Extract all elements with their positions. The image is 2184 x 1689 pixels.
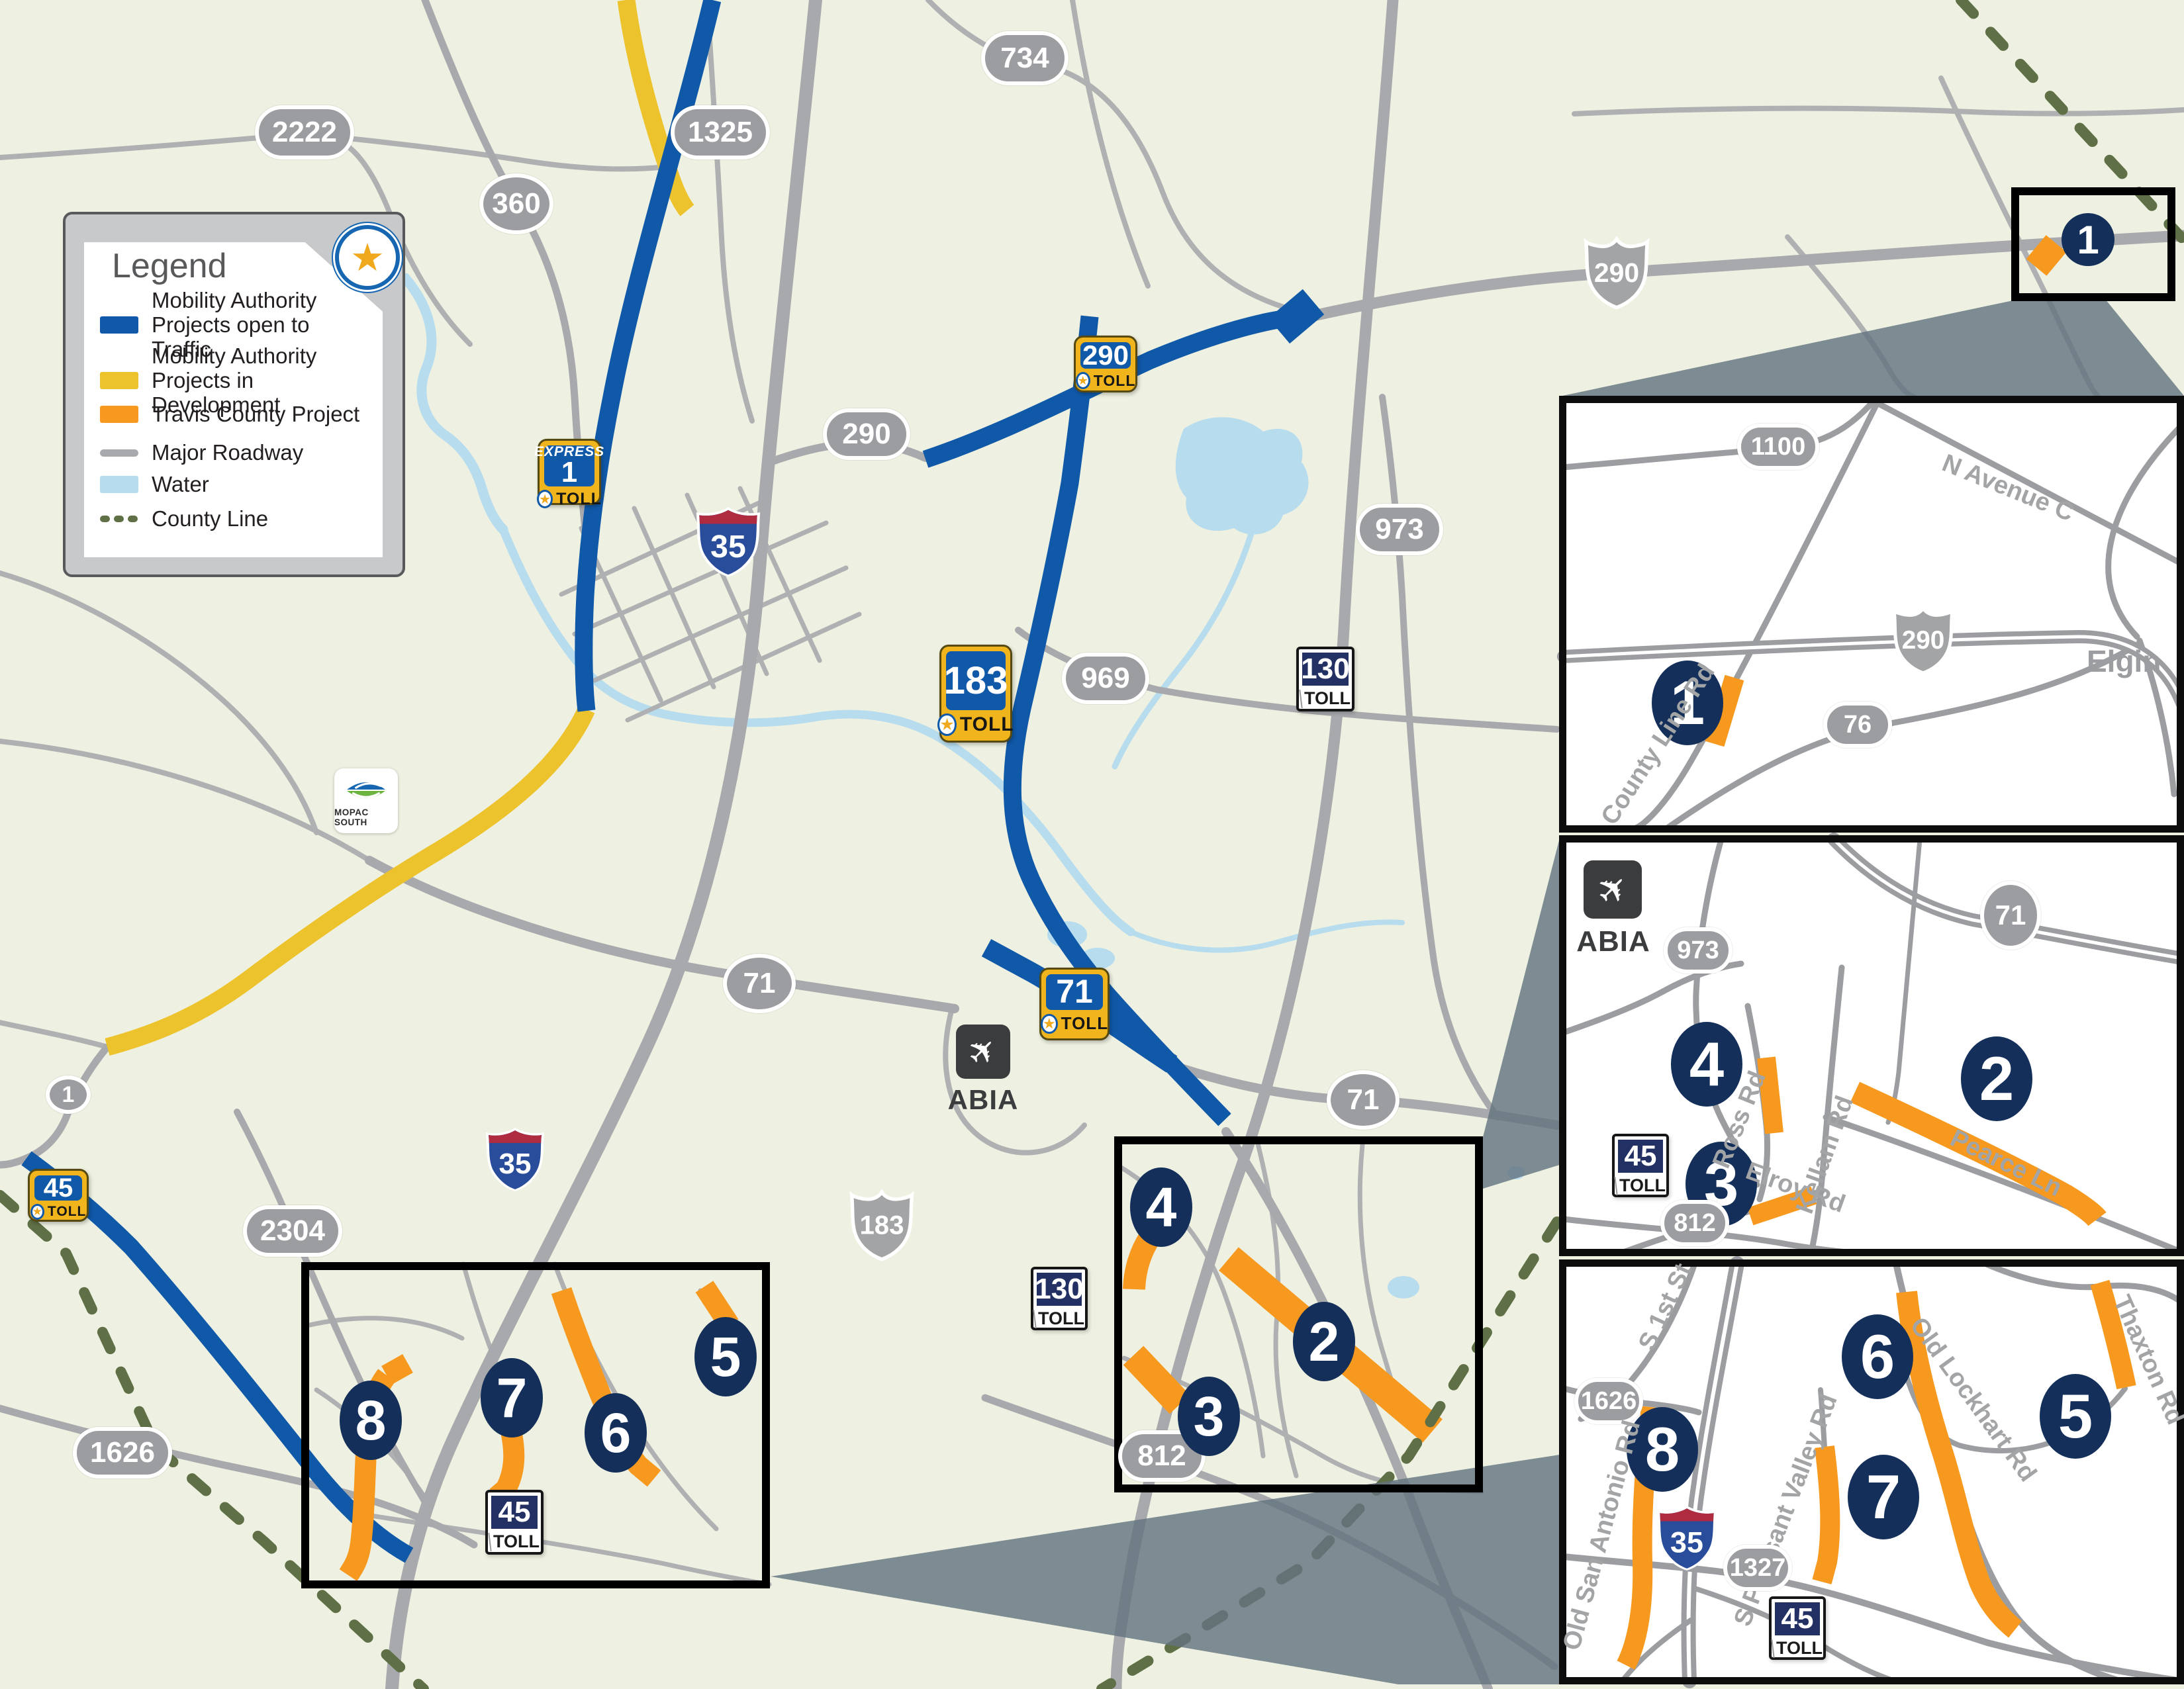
legend-swatch-water bbox=[100, 476, 138, 493]
mobility-authority-star-icon: ★ bbox=[937, 713, 956, 736]
legend-title: Legend bbox=[112, 246, 227, 286]
route-shield-1626: 1626 bbox=[73, 1427, 172, 1479]
elgin-city-label: Elgin bbox=[2087, 643, 2161, 679]
project-marker-6-number: 6 bbox=[600, 1401, 632, 1465]
project-marker-8: 8 bbox=[340, 1381, 402, 1460]
route-shield-71-east-label: 71 bbox=[1347, 1083, 1380, 1117]
toll-290-number: 290 bbox=[1082, 342, 1129, 369]
project-marker-1-number: 1 bbox=[2077, 217, 2099, 263]
inset2-abia-airport-icon: ✈ bbox=[1584, 860, 1642, 919]
texas-flag-icon: ★ bbox=[1771, 1639, 1774, 1657]
inset3-i35-label: 35 bbox=[1670, 1525, 1703, 1559]
interstate-shield-35-south: 35 bbox=[481, 1126, 549, 1198]
mopac-south-logo: MoPac South bbox=[334, 768, 398, 833]
inset3-marker-7-number: 7 bbox=[1866, 1461, 1901, 1533]
inset2-route-shield-973: 973 bbox=[1664, 927, 1733, 974]
inset1-route-shield-1100: 1100 bbox=[1737, 424, 1819, 470]
route-shield-1325-label: 1325 bbox=[688, 116, 753, 149]
toll-shield-290: 290 ★TOLL bbox=[1074, 336, 1137, 392]
inset2-txdot-45-number: 45 bbox=[1618, 1140, 1663, 1173]
route-shield-969-label: 969 bbox=[1081, 662, 1129, 695]
mobility-authority-star-icon: ★ bbox=[537, 490, 553, 508]
legend-item-major-roadway: Major Roadway bbox=[100, 441, 370, 465]
route-shield-973-label: 973 bbox=[1375, 513, 1423, 546]
inset3-marker-5-number: 5 bbox=[2058, 1381, 2093, 1452]
route-shield-71-west-label: 71 bbox=[743, 967, 776, 1000]
toll-shield-183: 183 ★TOLL bbox=[939, 645, 1012, 743]
austin-mobility-projects-map: 2222 360 1325 734 290 969 973 71 71 1 23… bbox=[0, 0, 2184, 1689]
inset3-marker-8-number: 8 bbox=[1645, 1414, 1680, 1485]
legend-label: Water bbox=[152, 473, 370, 497]
txdot-130-number: 130 bbox=[1037, 1273, 1082, 1306]
toll-word: TOLL bbox=[1094, 372, 1136, 390]
toll-word: TOLL bbox=[556, 490, 602, 509]
airplane-icon: ✈ bbox=[1586, 863, 1639, 916]
mobility-authority-star-icon: ★ bbox=[30, 1204, 44, 1220]
legend-swatch-gray-line bbox=[100, 449, 138, 457]
inset1-us-highway-shield-290: 290 bbox=[1889, 606, 1957, 676]
project-marker-4: 4 bbox=[1130, 1167, 1192, 1247]
txdot-130-number: 130 bbox=[1302, 653, 1349, 686]
toll-shield-express-1: EXPRESS1 ★TOLL bbox=[538, 439, 601, 505]
inset2-marker-4-number: 4 bbox=[1689, 1028, 1724, 1100]
inset1-1100-label: 1100 bbox=[1751, 433, 1805, 461]
express-1-number: 1 bbox=[561, 459, 577, 486]
legend-swatch-blue bbox=[100, 316, 138, 334]
i35-label: 35 bbox=[710, 529, 746, 565]
inset2-route-shield-812: 812 bbox=[1660, 1200, 1729, 1246]
project-marker-1: 1 bbox=[2062, 213, 2114, 266]
texas-flag-icon: ★ bbox=[1033, 1309, 1036, 1328]
project-marker-7: 7 bbox=[481, 1358, 543, 1438]
abia-airport-icon: ✈ bbox=[956, 1025, 1010, 1079]
txdot-toll-shield-130-north: 130 ★TOLL bbox=[1296, 647, 1354, 711]
legend-item-water: Water bbox=[100, 473, 370, 497]
route-shield-2304: 2304 bbox=[243, 1205, 342, 1257]
toll-71-number: 71 bbox=[1056, 976, 1093, 1008]
toll-word: TOLL bbox=[48, 1204, 86, 1220]
route-shield-71-west: 71 bbox=[723, 954, 796, 1013]
toll-183-number: 183 bbox=[944, 662, 1008, 699]
inset2-973-label: 973 bbox=[1677, 936, 1719, 965]
route-shield-2222-label: 2222 bbox=[272, 116, 337, 149]
legend-label: County Line bbox=[152, 507, 370, 531]
texas-flag-icon: ★ bbox=[1614, 1176, 1617, 1195]
abia-airport-label: ABIA bbox=[943, 1084, 1023, 1116]
route-shield-71-east: 71 bbox=[1327, 1070, 1400, 1130]
legend-item-travis-county: Travis County Project bbox=[100, 402, 370, 427]
route-shield-2222: 2222 bbox=[255, 105, 354, 160]
us-highway-shield-290: 290 bbox=[1581, 236, 1652, 310]
route-shield-973: 973 bbox=[1356, 504, 1443, 555]
route-shield-1626-label: 1626 bbox=[90, 1436, 155, 1469]
inset2-project-marker-4: 4 bbox=[1671, 1022, 1742, 1107]
inset3-1327-label: 1327 bbox=[1730, 1554, 1786, 1582]
inset3-project-marker-6: 6 bbox=[1842, 1314, 1913, 1399]
route-shield-734-label: 734 bbox=[1000, 42, 1049, 75]
interstate-shield-35-north: 35 bbox=[691, 505, 765, 584]
route-shield-1-label: 1 bbox=[62, 1082, 75, 1108]
mobility-authority-star-icon: ★ bbox=[1041, 1014, 1058, 1034]
inset3-txdot-toll-shield-45: 45 ★TOLL bbox=[1769, 1596, 1826, 1660]
inset2-project-marker-2: 2 bbox=[1961, 1036, 2032, 1121]
toll-word: TOLL bbox=[493, 1531, 540, 1552]
toll-word: TOLL bbox=[1776, 1638, 1823, 1659]
route-shield-734: 734 bbox=[981, 31, 1068, 85]
inset1-76-label: 76 bbox=[1844, 711, 1872, 739]
legend-label: Travis County Project bbox=[152, 402, 370, 427]
legend: Legend ★ Mobility Authority Projects ope… bbox=[63, 212, 405, 577]
inset3-interstate-shield-35: 35 bbox=[1652, 1504, 1721, 1577]
us-290-label: 290 bbox=[1594, 257, 1639, 288]
toll-45-number: 45 bbox=[44, 1175, 73, 1201]
project-marker-6: 6 bbox=[585, 1393, 647, 1473]
toll-word: TOLL bbox=[1038, 1308, 1084, 1329]
project-marker-4-number: 4 bbox=[1146, 1175, 1177, 1240]
mopac-south-logo-text: MoPac South bbox=[334, 807, 398, 827]
txdot-toll-shield-45-main: 45 ★TOLL bbox=[485, 1490, 544, 1555]
txdot-toll-shield-130-south: 130 ★TOLL bbox=[1031, 1267, 1088, 1330]
toll-word: TOLL bbox=[960, 713, 1014, 736]
inset3-route-shield-1626: 1626 bbox=[1574, 1378, 1643, 1424]
project-marker-2: 2 bbox=[1293, 1302, 1355, 1381]
inset3-project-marker-7: 7 bbox=[1848, 1455, 1919, 1539]
toll-shield-71: 71 ★TOLL bbox=[1039, 968, 1110, 1040]
route-shield-360: 360 bbox=[479, 173, 553, 234]
texas-flag-icon: ★ bbox=[488, 1532, 491, 1551]
route-shield-812-label: 812 bbox=[1137, 1439, 1186, 1473]
toll-shield-45: 45 ★TOLL bbox=[28, 1169, 89, 1222]
inset3-marker-6-number: 6 bbox=[1860, 1321, 1895, 1392]
inset3-route-shield-1327: 1327 bbox=[1723, 1545, 1792, 1591]
texas-flag-icon: ★ bbox=[1299, 689, 1302, 708]
legend-swatch-yellow bbox=[100, 372, 138, 389]
mobility-authority-logo-icon: ★ bbox=[335, 225, 400, 290]
mobility-authority-star-icon: ★ bbox=[1076, 372, 1090, 389]
route-shield-290-downtown-label: 290 bbox=[842, 418, 890, 451]
inset3-project-marker-5: 5 bbox=[2040, 1374, 2111, 1459]
route-shield-969: 969 bbox=[1062, 653, 1149, 704]
route-shield-290-downtown: 290 bbox=[823, 408, 910, 460]
toll-word: TOLL bbox=[1304, 688, 1351, 709]
toll-word: TOLL bbox=[1061, 1013, 1108, 1034]
route-shield-1: 1 bbox=[46, 1075, 91, 1114]
project-marker-3: 3 bbox=[1178, 1377, 1240, 1456]
project-marker-7-number: 7 bbox=[497, 1366, 528, 1430]
legend-item-county-line: County Line bbox=[100, 507, 370, 531]
legend-swatch-county-dash bbox=[100, 516, 138, 522]
us-183-label: 183 bbox=[859, 1210, 904, 1240]
inset2-txdot-toll-shield-45: 45 ★TOLL bbox=[1612, 1134, 1669, 1197]
inset1-route-shield-76: 76 bbox=[1823, 702, 1892, 748]
inset2-marker-2-number: 2 bbox=[1979, 1043, 2014, 1115]
project-marker-3-number: 3 bbox=[1194, 1385, 1225, 1449]
inset3-txdot-45-number: 45 bbox=[1775, 1602, 1820, 1635]
inset2-route-shield-71: 71 bbox=[1980, 881, 2041, 950]
project-marker-5-number: 5 bbox=[710, 1325, 741, 1389]
project-marker-5: 5 bbox=[694, 1317, 757, 1396]
us-highway-shield-183: 183 bbox=[847, 1189, 917, 1262]
toll-word: TOLL bbox=[1619, 1175, 1666, 1196]
project-marker-8-number: 8 bbox=[356, 1389, 387, 1453]
inset3-1626-label: 1626 bbox=[1581, 1387, 1637, 1416]
route-shield-2304-label: 2304 bbox=[260, 1214, 325, 1248]
route-shield-360-label: 360 bbox=[492, 187, 540, 220]
inset2-abia-label: ABIA bbox=[1574, 925, 1653, 958]
i35-south-label: 35 bbox=[499, 1148, 532, 1180]
route-shield-1325: 1325 bbox=[671, 105, 770, 160]
inset2-71-label: 71 bbox=[1995, 899, 2026, 931]
legend-label: Major Roadway bbox=[152, 441, 370, 465]
mopac-south-logo-icon bbox=[346, 775, 387, 805]
inset1-us-290-label: 290 bbox=[1902, 626, 1945, 655]
airplane-icon: ✈ bbox=[959, 1027, 1007, 1075]
inset2-812-label: 812 bbox=[1674, 1209, 1715, 1238]
txdot-45-number: 45 bbox=[491, 1496, 538, 1529]
legend-swatch-orange bbox=[100, 406, 138, 423]
project-marker-2-number: 2 bbox=[1309, 1310, 1340, 1374]
